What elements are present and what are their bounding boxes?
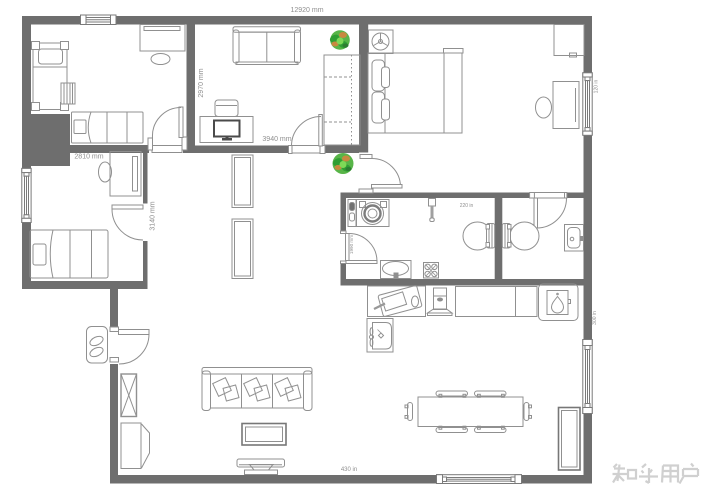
svg-text:1990 mm: 1990 mm	[349, 235, 354, 254]
svg-text:300 in: 300 in	[592, 311, 598, 325]
svg-text:220 in: 220 in	[460, 203, 474, 209]
svg-text:2970 mm: 2970 mm	[198, 68, 205, 97]
svg-text:3140 mm: 3140 mm	[150, 201, 157, 230]
svg-text:12920 mm: 12920 mm	[290, 7, 323, 14]
svg-text:120 in: 120 in	[594, 79, 600, 93]
svg-text:3940 mm: 3940 mm	[262, 136, 291, 143]
svg-text:430 in: 430 in	[341, 467, 357, 473]
svg-text:2810 mm: 2810 mm	[74, 154, 103, 161]
